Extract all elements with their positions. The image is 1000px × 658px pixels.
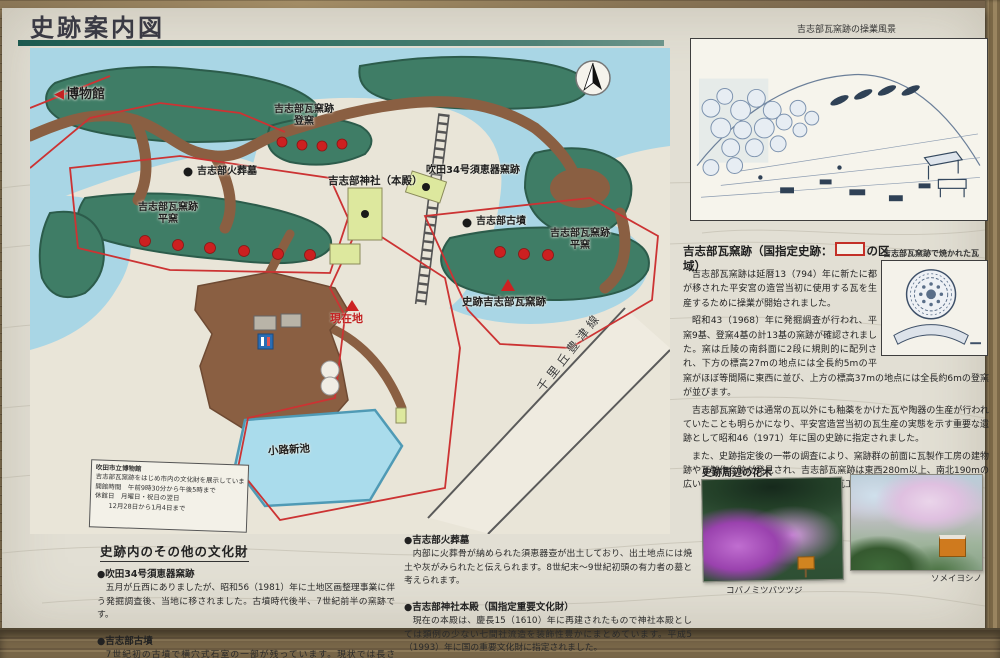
cherry-caption: ソメイヨシノ — [902, 572, 982, 584]
title-underline-bar — [18, 40, 664, 46]
label-sueki-kiln: 吹田34号須恵器窯跡 — [426, 165, 520, 177]
museum-grounds-area — [195, 272, 348, 436]
museum-info-box: 吹田市立博物館 吉志部瓦窯跡をはじめ市内の文化財を展示しています。 開館時間 午… — [89, 459, 249, 532]
cremation-grave-dot — [184, 168, 193, 177]
kiln-operation-sketch — [690, 38, 988, 221]
museum-direction-arrow-icon: ◀ — [54, 87, 64, 102]
red-area-legend-box — [835, 242, 865, 256]
restroom-icon — [258, 334, 273, 349]
azalea-photo — [701, 477, 844, 582]
label-noborigama: 吉志部瓦窯跡登窯 — [248, 104, 360, 127]
photo-stand — [939, 535, 966, 557]
label-shrine: 吉志部神社（本殿） — [328, 175, 423, 187]
label-museum: ◀博物館 — [54, 88, 105, 103]
cherry-photo — [850, 474, 983, 571]
label-hiragama-west: 吉志部瓦窯跡平窯 — [112, 202, 224, 225]
tile-caption: 吉志部瓦窯跡で焼かれた瓦 — [883, 248, 979, 259]
article-paragraph: 吉志部瓦窯跡では通常の瓦以外にも釉薬をかけた瓦や陶器の生産が行われていたことも明… — [683, 404, 989, 447]
north-compass-icon — [576, 61, 610, 95]
page-title: 史跡案内図 — [30, 8, 165, 43]
azalea-caption: コバノミツバツツジ — [726, 584, 803, 596]
site-guide-map: ◀博物館 吉志部瓦窯跡登窯 吉志部火葬墓 吉志部神社（本殿） 吹田34号須恵器窯… — [30, 48, 670, 534]
bottom-section-heading: 史跡内のその他の文化財 — [100, 541, 249, 562]
photo-signpost-stem — [805, 568, 807, 577]
sketch-caption: 吉志部瓦窯跡の操業風景 — [797, 22, 896, 35]
culture-item: ●吉志部火葬墓 内部に火葬骨が納められた須恵器壺が出土しており、出土地点には焼土… — [404, 532, 692, 589]
photo-of-sign-board: 史跡案内図 — [0, 0, 1000, 658]
kofun-dot — [463, 219, 472, 228]
bottom-column-left: ●吹田34号須恵器窯跡 五月が丘西にありましたが、昭和56（1981）年に土地区… — [97, 566, 395, 658]
label-hiragama-east: 吉志部瓦窯跡平窯 — [524, 228, 636, 251]
culture-item: ●吉志部古墳 7世紀初の古墳で横穴式石室の一部が残っています。現状では長さ3.3… — [97, 633, 395, 658]
tile-box-spacer — [877, 268, 989, 360]
sign-board: 史跡案内図 — [2, 8, 985, 629]
culture-item: ●吹田34号須恵器窯跡 五月が丘西にありましたが、昭和56（1981）年に土地区… — [97, 566, 395, 623]
label-kofun: 吉志部古墳 — [476, 216, 526, 228]
bottom-column-right: ●吉志部火葬墓 内部に火葬骨が納められた須恵器壺が出土しており、出土地点には焼土… — [404, 532, 692, 658]
label-historic-site: 史跡吉志部瓦窯跡 — [462, 296, 546, 308]
culture-item: ●吉志部神社本殿（国指定重要文化財） 現在の本殿は、慶長15（1610）年に再建… — [404, 599, 692, 656]
label-current-location: 現在地 — [330, 313, 363, 326]
article-body: 吉志部瓦窯跡は延暦13（794）年に新たに都が移された平安宮の造営当初に使用する… — [683, 268, 989, 496]
label-cremation-grave: 吉志部火葬墓 — [197, 166, 257, 178]
